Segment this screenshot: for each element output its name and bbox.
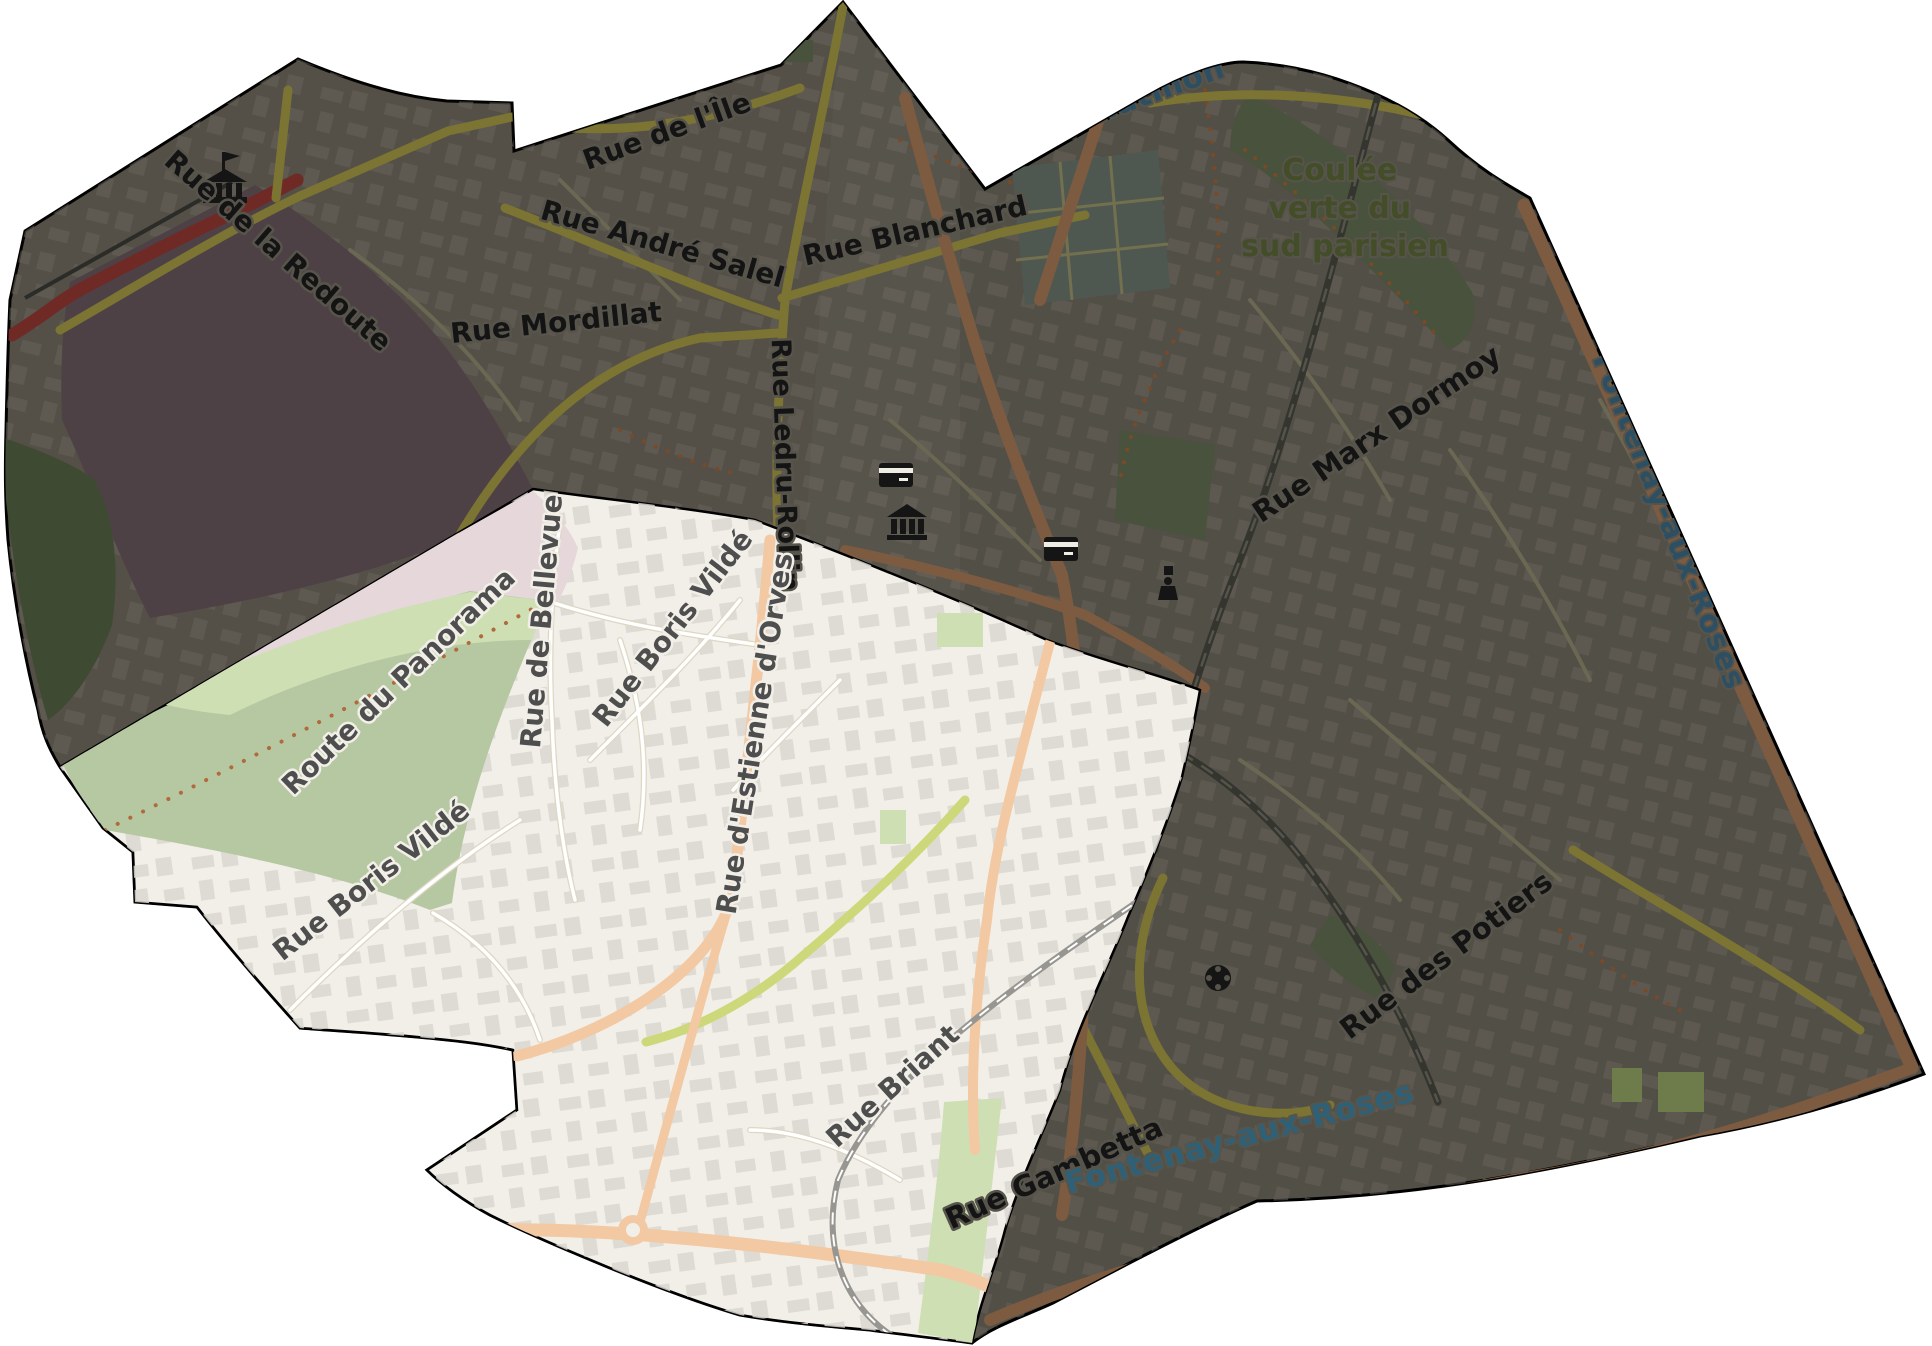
roundabout — [622, 1219, 644, 1241]
water-tower-icon — [1205, 965, 1231, 991]
atm-icon — [1044, 537, 1078, 561]
map-viewport[interactable]: Rue de l'Île Rue André Salel Rue Blancha… — [0, 0, 1932, 1346]
green-top-small — [783, 40, 813, 62]
atm-icon — [879, 463, 913, 487]
